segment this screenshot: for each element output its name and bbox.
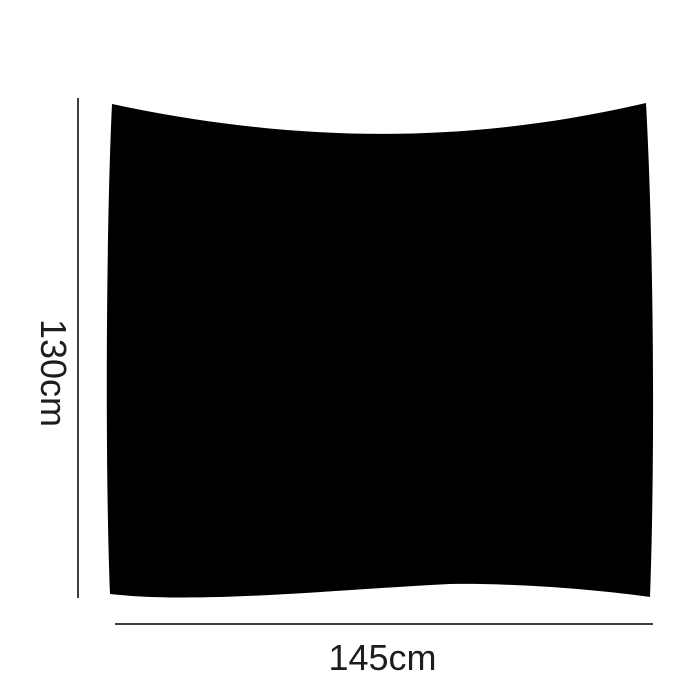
height-dimension-line — [77, 98, 79, 598]
width-label: 145cm — [300, 638, 465, 678]
product-dimension-diagram: 130cm 145cm — [0, 0, 700, 700]
width-dimension-line — [115, 623, 653, 625]
tapestry-image — [0, 0, 700, 700]
tapestry-shape — [107, 103, 653, 598]
height-label: 130cm — [35, 317, 71, 429]
